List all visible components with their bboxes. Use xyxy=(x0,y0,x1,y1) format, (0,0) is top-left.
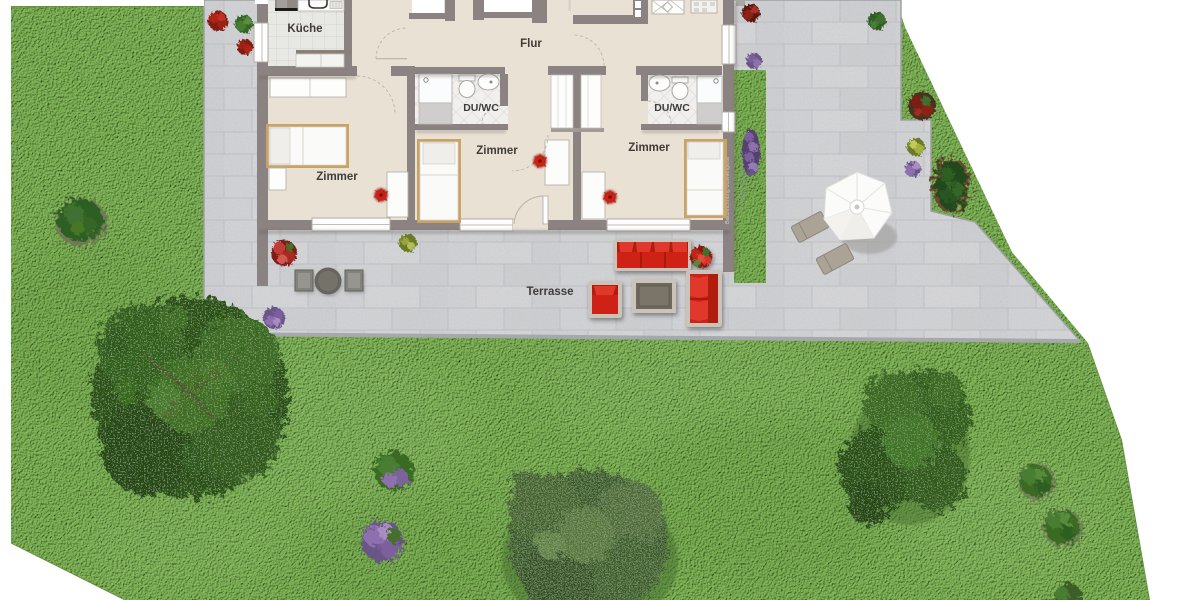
svg-text:Terrasse: Terrasse xyxy=(526,286,573,298)
svg-text:DU/WC: DU/WC xyxy=(463,102,499,114)
svg-text:DU/WC: DU/WC xyxy=(654,102,690,114)
svg-text:Zimmer: Zimmer xyxy=(316,171,358,183)
svg-text:Zimmer: Zimmer xyxy=(628,142,670,154)
svg-text:Flur: Flur xyxy=(520,38,542,50)
svg-text:Zimmer: Zimmer xyxy=(476,145,518,157)
svg-text:Küche: Küche xyxy=(287,23,322,35)
